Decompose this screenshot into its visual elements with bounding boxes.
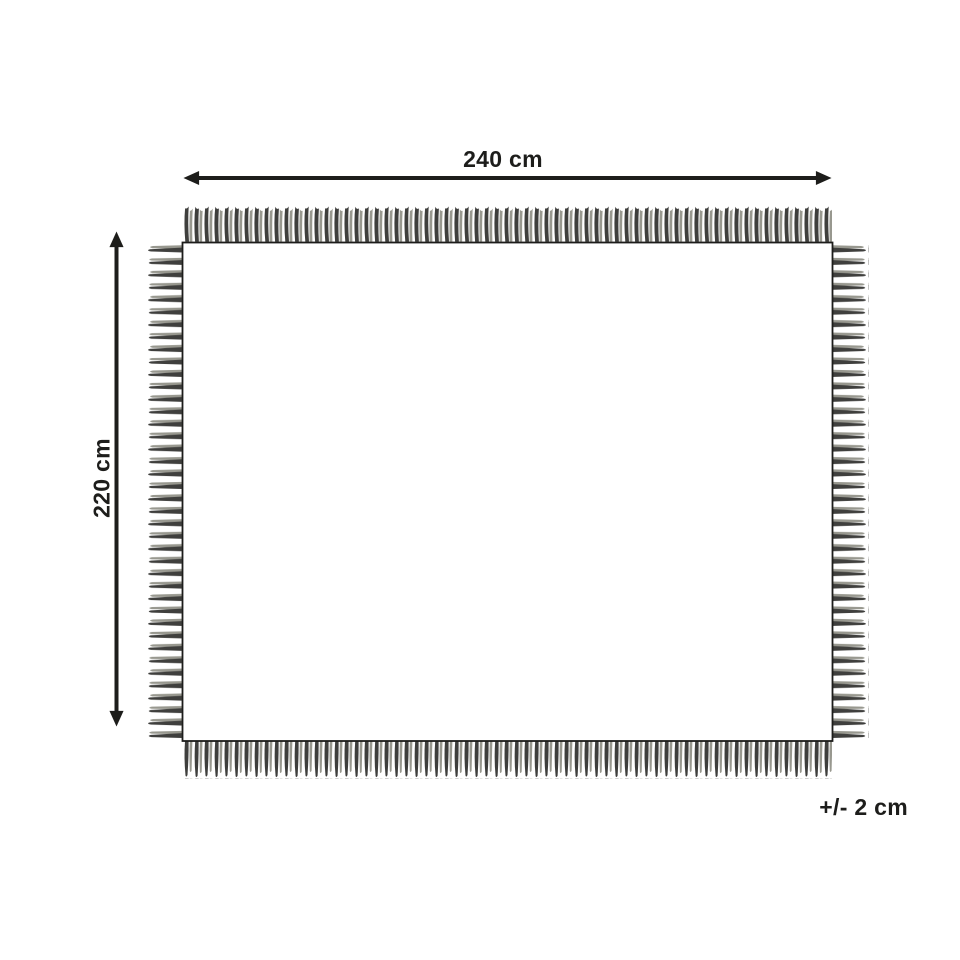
rug-illustration <box>146 204 869 779</box>
rug-fringe-left <box>146 243 182 741</box>
width-dimension-label: 240 cm <box>463 146 543 172</box>
rug-fringe-right <box>833 243 869 741</box>
height-dimension-label: 220 cm <box>89 438 115 518</box>
rug-body <box>183 243 833 742</box>
height-dimension: 220 cm <box>89 237 117 721</box>
diagram-canvas: 240 cm 220 cm +/- 2 cm <box>0 0 960 960</box>
rug-fringe-bottom <box>183 742 832 779</box>
rug-fringe-top <box>183 204 832 242</box>
tolerance-label: +/- 2 cm <box>819 794 908 820</box>
rug-dimension-diagram: 240 cm 220 cm +/- 2 cm <box>0 0 960 960</box>
width-dimension: 240 cm <box>189 146 826 178</box>
